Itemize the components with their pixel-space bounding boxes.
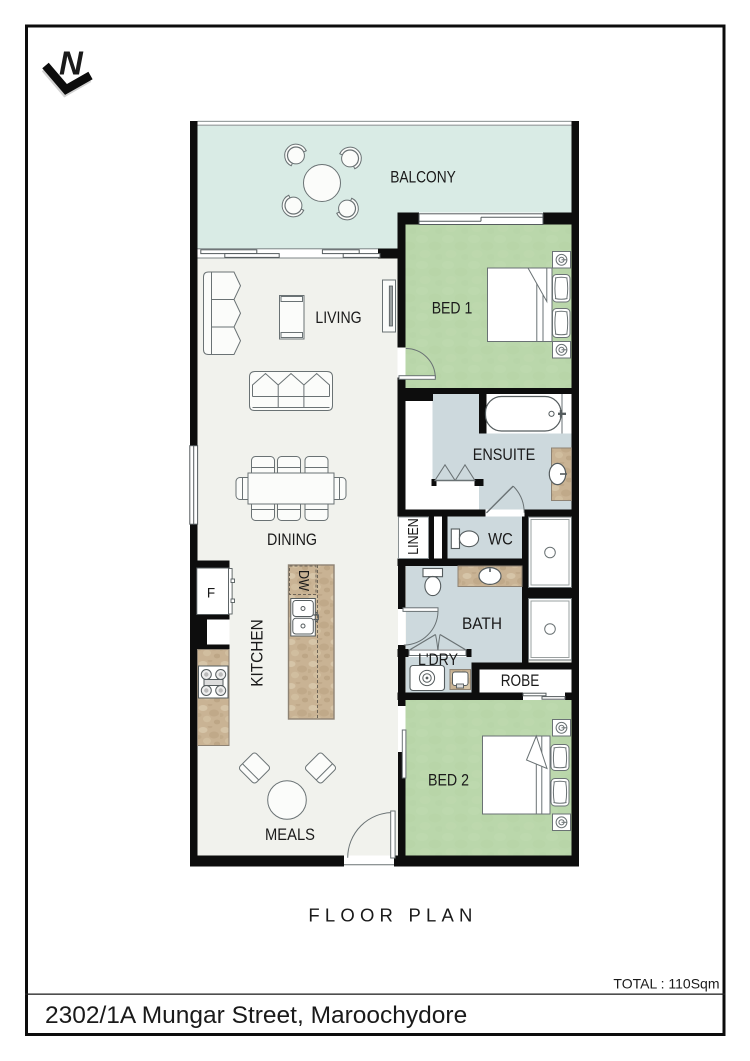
svg-text:N: N xyxy=(59,45,84,82)
svg-text:F: F xyxy=(207,586,215,601)
svg-text:MEALS: MEALS xyxy=(265,825,315,844)
svg-text:LINEN: LINEN xyxy=(405,518,422,555)
svg-text:ENSUITE: ENSUITE xyxy=(473,445,536,464)
svg-text:KITCHEN: KITCHEN xyxy=(247,619,266,687)
svg-text:BATH: BATH xyxy=(462,614,502,633)
svg-text:WC: WC xyxy=(488,530,513,549)
svg-text:L'DRY: L'DRY xyxy=(418,650,458,669)
svg-text:DINING: DINING xyxy=(267,530,317,549)
svg-text:BALCONY: BALCONY xyxy=(390,168,456,187)
svg-text:LIVING: LIVING xyxy=(315,308,361,327)
svg-text:TOTAL : 110Sqm: TOTAL : 110Sqm xyxy=(613,976,719,992)
svg-text:ROBE: ROBE xyxy=(501,671,540,690)
svg-text:2302/1A Mungar Street, Marooch: 2302/1A Mungar Street, Maroochydore xyxy=(45,1002,467,1029)
svg-text:BED 1: BED 1 xyxy=(432,299,473,318)
svg-text:FLOOR PLAN: FLOOR PLAN xyxy=(308,905,477,926)
svg-text:DW: DW xyxy=(295,570,312,592)
svg-text:BED 2: BED 2 xyxy=(428,771,469,790)
